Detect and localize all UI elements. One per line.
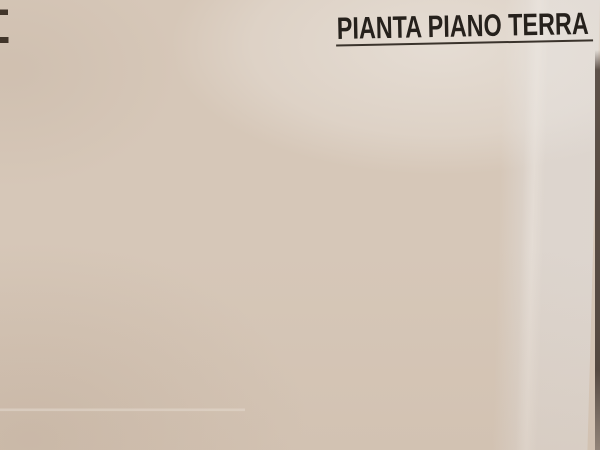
svg-text:PIANTA PIANO TERRA: PIANTA PIANO TERRA xyxy=(336,6,589,46)
